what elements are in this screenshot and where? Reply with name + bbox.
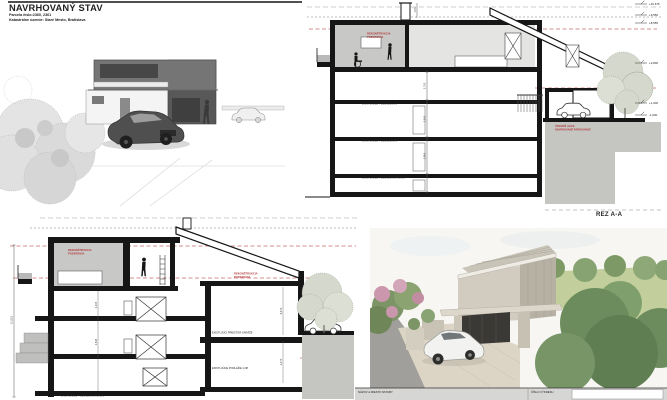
tree-drawing — [297, 273, 353, 333]
drawing-sheet: NAVRHOVANÝ STAV Parcela číslo:2360, 2361… — [0, 0, 667, 400]
pencil-sketch-render — [0, 38, 290, 208]
dim-label: 2,800 — [422, 152, 426, 159]
elevation-label: +9,550 — [649, 13, 658, 17]
exterior-steps — [16, 333, 48, 363]
recon-label-line2: PODKROVIA — [68, 252, 84, 256]
section-a-drawing: 1,05 — [305, 0, 667, 224]
dim-label: 1,05 — [413, 7, 417, 13]
elevation-label: +1,000 — [649, 101, 658, 105]
ladder — [160, 255, 165, 285]
dimension-chain-center: 3,105 2,645 — [94, 291, 98, 391]
person-standing-silhouette — [141, 258, 146, 277]
dim-label: 2,645 — [94, 338, 98, 345]
section-title: REZ A-A — [596, 212, 623, 218]
recon-label-line2: PODKROVIA — [234, 275, 250, 279]
elevation-label: +8,555 — [649, 21, 658, 25]
roof-slope — [176, 218, 299, 278]
section-b-drawing: 11,015 3,105 2,645 6,475 2,475 REKONŠTRU… — [0, 215, 360, 400]
footer-project-label: NÁZOV A MIESTO STAVBY — [358, 390, 393, 394]
elevation-label: +10,675 — [649, 2, 660, 6]
watercolor-render — [370, 228, 667, 388]
footer-drawing-number-box — [572, 390, 663, 400]
dim-label: 6,475 — [279, 307, 283, 314]
window-x-symbols — [124, 297, 167, 386]
dim-label: 2,700 — [422, 82, 426, 89]
render-cloud — [500, 231, 600, 249]
garage-label: EXISTUJÚCI PRIESTOR GARÁŽE — [212, 330, 253, 335]
balcony-hatch — [317, 55, 330, 62]
parcel-line: Parcela číslo:2360, 2361 — [9, 13, 51, 17]
header-block: NAVRHOVANÝ STAV Parcela číslo:2360, 2361… — [0, 0, 305, 36]
elevation-label: +3,800 — [649, 61, 658, 65]
render-cloud — [390, 236, 470, 256]
terrace-railing — [517, 95, 543, 112]
dimension-chain-right: 6,475 2,475 — [279, 287, 283, 383]
dim-label: 11,015 — [10, 315, 14, 324]
footer-number-label: ČÍSLO VÝKRESU — [531, 389, 554, 394]
dim-label: 2,500 — [422, 115, 426, 122]
sketch-ground — [90, 138, 285, 206]
dim-label: 2,475 — [279, 358, 283, 365]
cadastre-line: Katastrálne územie: Staré Mesto, Bratisl… — [9, 18, 86, 22]
dimension-chain-left: 11,015 — [10, 245, 16, 397]
garage-floor-label: EXISTUJÚCE PODLAŽIE 1.NP — [212, 365, 248, 370]
chimney: 1,05 — [399, 3, 417, 20]
dim-label: 3,105 — [94, 301, 98, 308]
recon-label-line2: PODKROVIA — [367, 35, 383, 39]
recon-label-line1: REKONŠTRUKCIA — [234, 271, 258, 276]
elevation-label: -1,000 — [649, 113, 658, 117]
footer-title-block: NÁZOV A MIESTO STAVBY ČÍSLO VÝKRESU — [350, 386, 667, 400]
balcony-hatch — [18, 273, 32, 279]
sheet-title: NAVRHOVANÝ STAV — [9, 2, 103, 13]
street-soil-mass — [298, 331, 354, 399]
